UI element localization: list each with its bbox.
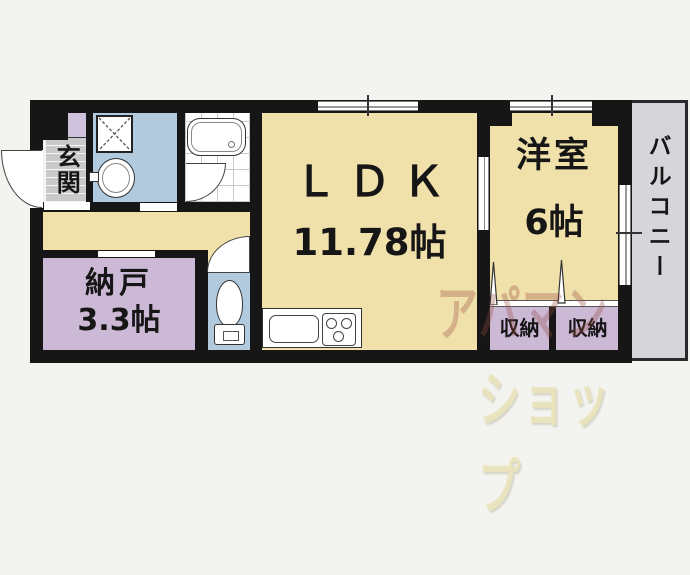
- window-ldk-center-tick: [367, 95, 369, 116]
- bathtub-icon: [187, 118, 246, 156]
- entrance-step: [44, 202, 90, 210]
- western-room-size: 6帖: [490, 205, 618, 242]
- watermark-line1: アパマン: [436, 266, 609, 353]
- balcony-border-top: [632, 100, 688, 103]
- wall-washroom-bathroom: [177, 100, 185, 212]
- washing-machine-pan-icon: [96, 115, 133, 153]
- wall-entrance-right: [86, 100, 93, 212]
- ldk-room-label: ＬＤＫ: [262, 160, 477, 204]
- kitchen-sink-icon: [269, 315, 319, 343]
- washbasin-icon: [97, 158, 135, 198]
- entrance-door-arc: [1, 150, 42, 208]
- balcony-border-bottom: [632, 358, 688, 361]
- balcony-label: バルコニー: [645, 134, 669, 284]
- toilet-bowl-icon: [216, 280, 243, 327]
- wall-hallway-ldk: [250, 212, 262, 353]
- balcony-window-center-tick: [616, 232, 642, 234]
- wall-western-corner-left: [477, 100, 512, 126]
- balcony-sliding-window: [619, 185, 631, 285]
- wall-bathroom-ldk: [250, 100, 262, 212]
- stove-icon: [322, 313, 356, 346]
- washroom-door-opening: [140, 203, 177, 211]
- storage-room-label: 納戸: [43, 268, 195, 300]
- ldk-room-size: 11.78帖: [262, 224, 477, 263]
- entrance-label: 玄関: [53, 144, 78, 196]
- wall-entrance-corner: [30, 100, 68, 140]
- balcony-border-right: [685, 100, 688, 361]
- wall-western-corner-right: [592, 100, 632, 126]
- floorplan-canvas: ＬＤＫ 11.78帖 洋室 6帖 納戸 3.3帖 収納 収納 玄関 バルコニー …: [0, 0, 690, 575]
- washbasin-tap-icon: [89, 172, 99, 182]
- wall-storage-right: [195, 250, 208, 353]
- sliding-door-ldk-western: [478, 157, 489, 230]
- storage-door-opening: [98, 251, 155, 257]
- storage-room-size: 3.3帖: [43, 305, 195, 337]
- toilet-tank-icon: [214, 324, 245, 345]
- western-room-label: 洋室: [490, 138, 618, 175]
- window-western-center-tick: [551, 95, 553, 116]
- watermark-line2: ショップ: [478, 352, 626, 526]
- kitchen-counter: [262, 308, 362, 348]
